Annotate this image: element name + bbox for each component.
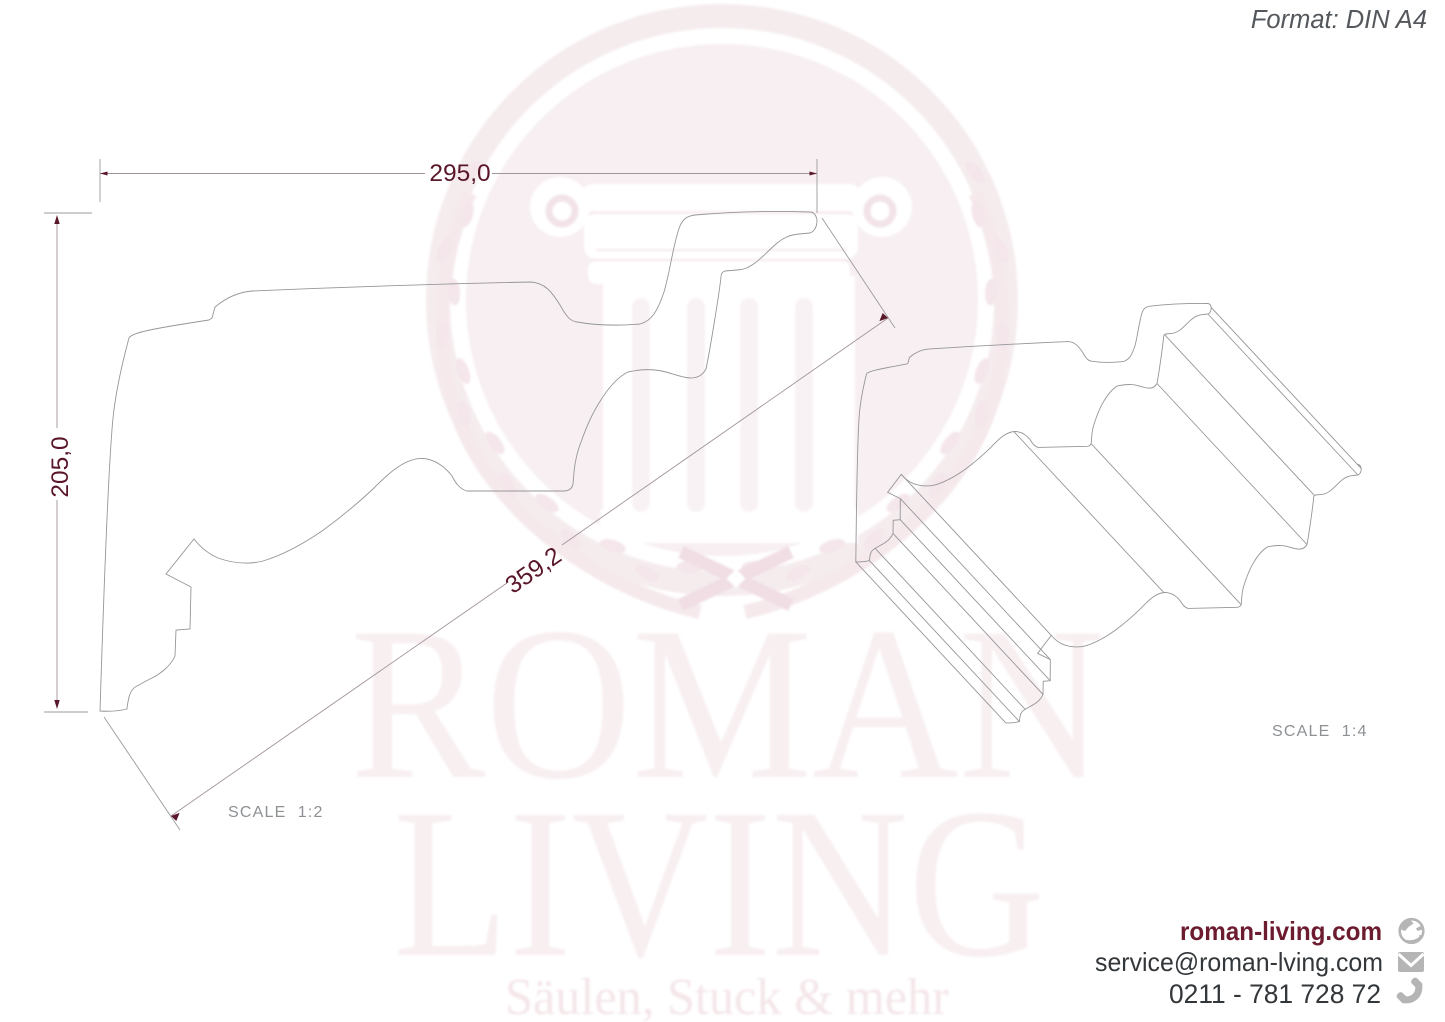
- svg-text:service@roman-lving.com: service@roman-lving.com: [1095, 947, 1383, 977]
- svg-text:SCALE 1:2: SCALE 1:2: [228, 804, 324, 821]
- svg-text:LIVING: LIVING: [393, 765, 1045, 1002]
- svg-text:Format: DIN A4: Format: DIN A4: [1251, 6, 1427, 34]
- svg-text:205,0: 205,0: [47, 436, 74, 497]
- svg-text:SCALE 1:4: SCALE 1:4: [1272, 723, 1368, 740]
- svg-text:Säulen, Stuck & mehr: Säulen, Stuck & mehr: [505, 969, 949, 1022]
- svg-text:roman-living.com: roman-living.com: [1180, 916, 1382, 946]
- svg-text:295,0: 295,0: [429, 160, 490, 187]
- svg-text:0211 - 781 728 72: 0211 - 781 728 72: [1169, 979, 1381, 1009]
